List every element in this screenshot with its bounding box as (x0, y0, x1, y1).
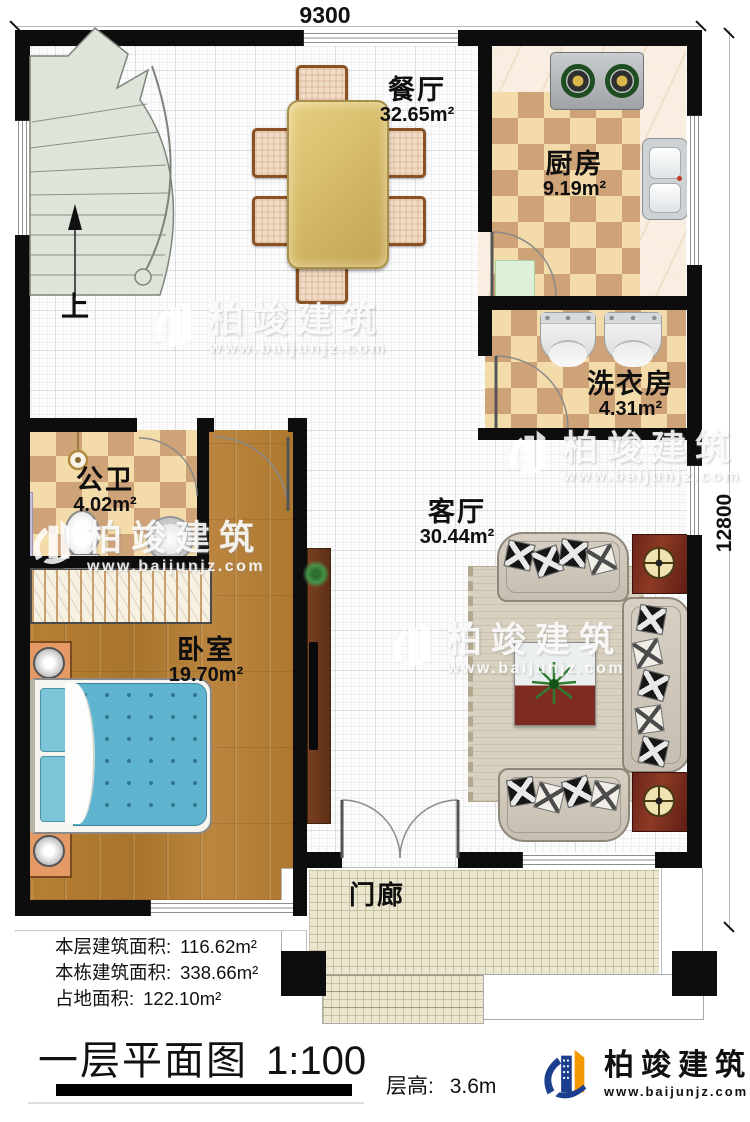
dining-chair (384, 128, 426, 178)
room-name: 公卫 (45, 466, 165, 494)
bedroom-window-sill (15, 916, 307, 931)
wall (687, 30, 702, 115)
floor-height-value: 3.6m (450, 1075, 497, 1098)
floor-plan-page: { "dimensions": { "width_label": "9300",… (0, 0, 750, 1122)
lamp-icon (33, 835, 65, 867)
washing-machine (604, 312, 662, 364)
wall (197, 418, 209, 568)
wall (15, 235, 30, 916)
dining-chair (384, 196, 426, 246)
bed (30, 678, 212, 834)
porch-column-right (672, 951, 717, 996)
floor-height: 层高: 3.6m (386, 1070, 496, 1100)
room-area: 4.02m² (45, 494, 165, 517)
room-area: 9.19m² (512, 178, 637, 201)
wall (15, 418, 137, 432)
room-label-living: 客厅 30.44m² (392, 498, 522, 549)
room-area: 30.44m² (392, 526, 522, 549)
side-table (632, 772, 688, 832)
nightstand (26, 828, 72, 878)
pillow (634, 704, 664, 734)
stat-label: 本层建筑面积: (55, 936, 171, 957)
wall (15, 900, 150, 916)
porch-column-left (281, 951, 326, 996)
window (687, 115, 702, 267)
room-name: 洗衣房 (568, 370, 693, 398)
stat-row: 本栋建筑面积:338.66m² (55, 960, 258, 986)
wall (478, 46, 492, 232)
bed-pillow (40, 756, 68, 822)
page-title: 一层平面图1:100 (38, 1028, 366, 1086)
sink-basin (649, 183, 681, 213)
room-area: 32.65m² (352, 104, 482, 127)
stat-row: 占地面积:122.10m² (55, 986, 258, 1012)
room-name: 卧室 (142, 636, 270, 664)
room-name: 客厅 (392, 498, 522, 526)
pillow (506, 776, 537, 807)
stat-label: 本栋建筑面积: (55, 962, 171, 983)
pillow (558, 538, 588, 568)
area-stats: 本层建筑面积:116.62m² 本栋建筑面积:338.66m² 占地面积:122… (55, 934, 258, 1012)
room-area: 4.31m² (568, 398, 693, 421)
title-underline (56, 1084, 352, 1096)
brand-website: www.baijunjz.com (604, 1084, 750, 1099)
room-label-kitchen: 厨房 9.19m² (512, 150, 637, 201)
lamp-icon (33, 647, 65, 679)
wall (458, 30, 702, 46)
wall (478, 296, 702, 310)
stairs-direction-label: 上 (58, 292, 94, 321)
stat-row: 本层建筑面积:116.62m² (55, 934, 258, 960)
bed-pillow (40, 688, 68, 752)
window (15, 120, 30, 237)
pillow (636, 604, 667, 635)
tv (309, 642, 318, 750)
coffee-table (514, 642, 596, 726)
room-label-bedroom: 卧室 19.70m² (142, 636, 270, 687)
stat-value: 338.66m² (180, 962, 258, 983)
stairs-up-label: 上 (58, 292, 94, 321)
wall (458, 852, 522, 868)
faucet-icon (677, 176, 682, 181)
room-area: 19.70m² (142, 664, 270, 687)
stove (550, 52, 644, 110)
wall (307, 852, 342, 868)
room-name: 餐厅 (352, 76, 482, 104)
room-label-laundry: 洗衣房 4.31m² (568, 370, 693, 421)
stat-label: 占地面积: (55, 988, 134, 1009)
brand-logo-icon (536, 1046, 594, 1104)
pillow (631, 637, 663, 669)
plan-scale: 1:100 (266, 1039, 366, 1083)
dimension-line-right (729, 30, 730, 930)
pillow (637, 735, 669, 767)
divider-line (28, 1102, 364, 1104)
side-table (632, 534, 688, 594)
wall (15, 556, 209, 568)
burner-icon (561, 64, 595, 98)
wall (687, 535, 702, 868)
brand-name: 柏竣建筑 (604, 1051, 750, 1081)
room-label-dining: 餐厅 32.65m² (352, 76, 482, 127)
floor-height-label: 层高: (386, 1075, 434, 1098)
window (522, 852, 657, 868)
sink-basin (649, 147, 681, 179)
wall (15, 30, 303, 46)
brand-logo: 柏竣建筑 www.baijunjz.com (536, 1046, 750, 1104)
room-label-porch: 门廊 (332, 882, 422, 909)
room-name: 厨房 (512, 150, 637, 178)
stat-value: 116.62m² (180, 936, 257, 957)
pillow (590, 780, 621, 811)
wall (478, 296, 492, 356)
dimension-width-label: 9300 (270, 2, 380, 29)
plant-icon (303, 560, 329, 588)
window (150, 900, 297, 916)
burner-icon (605, 64, 639, 98)
washing-machine (540, 312, 596, 364)
kitchen-sink (642, 138, 688, 220)
wardrobe (30, 568, 212, 624)
porch-platform-right (483, 974, 704, 1020)
wall (478, 428, 702, 440)
window (303, 30, 460, 46)
wall (655, 852, 702, 868)
plan-title: 一层平面图 (38, 1039, 248, 1083)
room-name: 门廊 (332, 882, 422, 909)
stat-value: 122.10m² (143, 988, 221, 1009)
window (687, 465, 702, 537)
dimension-height-label: 12800 (713, 491, 735, 555)
room-label-bathroom: 公卫 4.02m² (45, 466, 165, 517)
wall (15, 30, 30, 120)
wall (293, 418, 307, 916)
porch-steps-left (322, 974, 484, 1024)
